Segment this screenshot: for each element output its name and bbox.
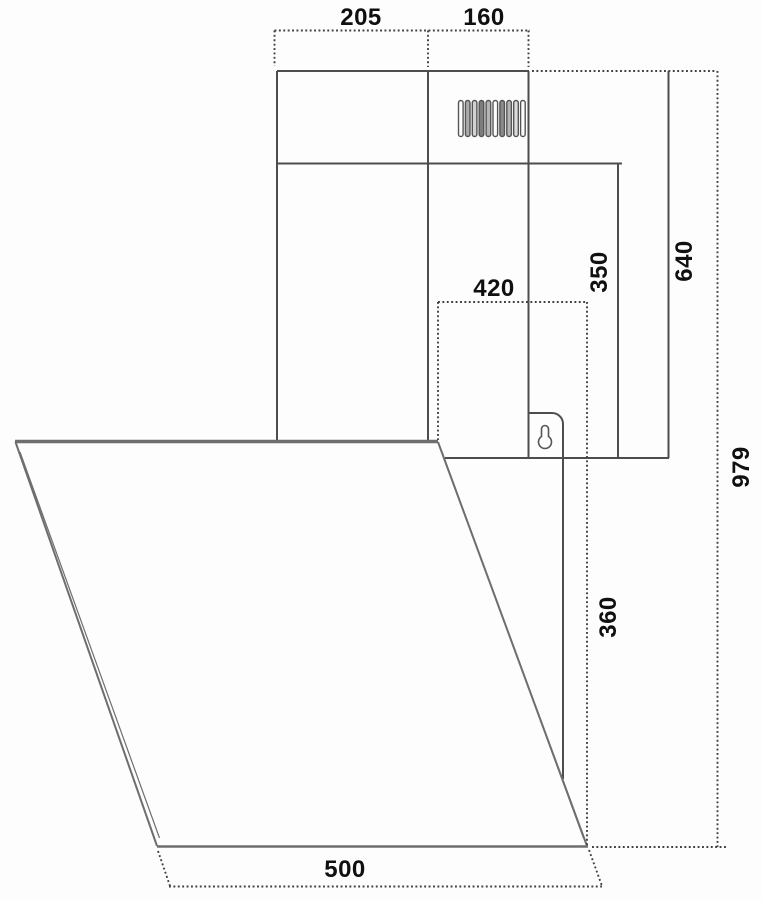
- glass-panel: [15, 442, 588, 847]
- dim-label-979: 979: [728, 446, 755, 488]
- dim-label-500: 500: [324, 856, 366, 883]
- hood-diagram: 205 160 420 350 640 979 360 500: [0, 0, 762, 900]
- glass-left-inner-edge: [20, 452, 160, 838]
- dim-label-640: 640: [671, 240, 698, 282]
- dim-label-360: 360: [595, 596, 622, 638]
- dim-label-160: 160: [463, 4, 505, 31]
- ext-tick-bottom-right: [589, 850, 602, 886]
- ext-tick-bottom-left: [158, 851, 170, 886]
- wall-bracket-outline: [528, 413, 563, 779]
- vent-grille-icon: [459, 101, 526, 137]
- glass-left-outer-edge: [16, 442, 158, 846]
- chimney-outline: [277, 71, 622, 458]
- dim-label-350: 350: [586, 251, 613, 293]
- dim-label-205: 205: [340, 4, 382, 31]
- keyhole-mount-icon: [539, 426, 552, 449]
- hood-body: [445, 413, 669, 779]
- dimension-drawing-canvas: 205 160 420 350 640 979 360 500: [0, 0, 762, 900]
- solid-dimension-lines: [618, 71, 669, 458]
- dim-label-420: 420: [473, 275, 515, 302]
